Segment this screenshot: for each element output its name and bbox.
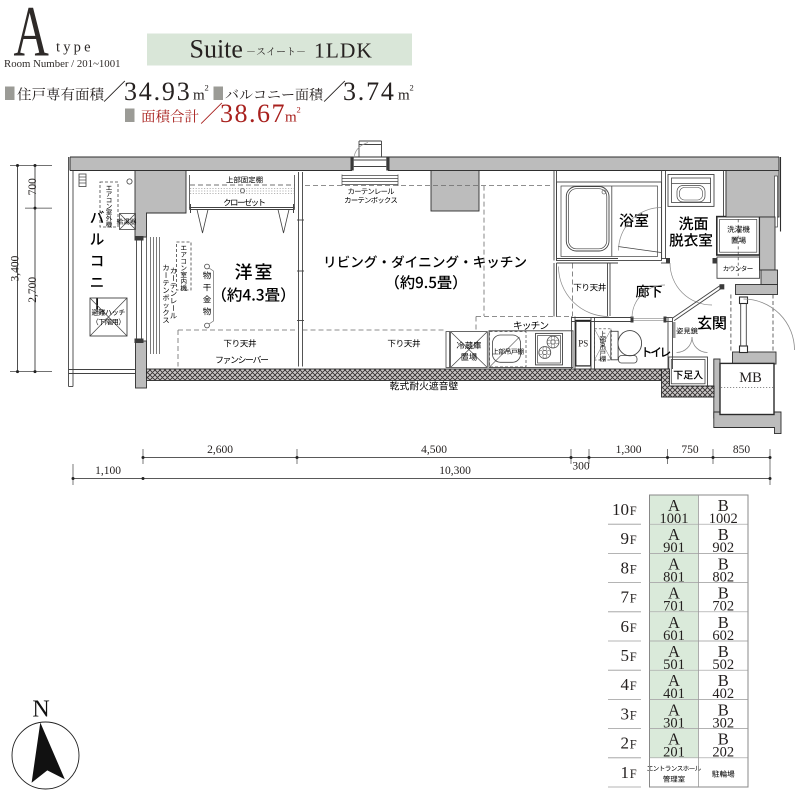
svg-text:Suite: Suite	[190, 35, 243, 64]
svg-text:2: 2	[621, 734, 630, 753]
svg-text:9: 9	[621, 529, 630, 548]
svg-text:PS: PS	[578, 339, 588, 349]
svg-text:8: 8	[621, 558, 630, 577]
svg-text:700: 700	[27, 178, 39, 196]
svg-text:2,600: 2,600	[207, 444, 233, 456]
svg-text:1,100: 1,100	[95, 465, 121, 477]
svg-text:2: 2	[297, 105, 301, 115]
svg-text:3: 3	[621, 704, 630, 723]
svg-text:F: F	[630, 708, 637, 722]
svg-text:5: 5	[621, 646, 630, 665]
svg-text:F: F	[630, 592, 637, 606]
svg-text:F: F	[630, 562, 637, 576]
svg-text:m: m	[193, 88, 205, 104]
svg-text:2: 2	[410, 83, 414, 93]
svg-text:F: F	[630, 738, 637, 752]
svg-text:10: 10	[612, 500, 629, 519]
svg-text:F: F	[630, 533, 637, 547]
svg-text:4,500: 4,500	[421, 444, 447, 456]
svg-text:F: F	[630, 621, 637, 635]
svg-text:2,700: 2,700	[27, 277, 39, 303]
svg-text:38.67: 38.67	[220, 99, 286, 128]
svg-text:6: 6	[621, 617, 630, 636]
svg-text:202: 202	[712, 745, 734, 761]
svg-text:type: type	[56, 40, 94, 56]
svg-text:F: F	[630, 650, 637, 664]
svg-text:7: 7	[621, 588, 630, 607]
svg-text:750: 750	[681, 444, 699, 456]
svg-text:N: N	[32, 697, 49, 723]
svg-text:F: F	[630, 679, 637, 693]
svg-text:1LDK: 1LDK	[314, 39, 373, 63]
svg-text:2: 2	[205, 83, 209, 93]
svg-text:1,300: 1,300	[616, 444, 642, 456]
svg-text:34.93: 34.93	[124, 77, 192, 106]
svg-text:m: m	[398, 88, 410, 104]
svg-text:3.74: 3.74	[343, 77, 396, 106]
svg-text:201: 201	[663, 745, 685, 761]
svg-text:850: 850	[733, 444, 751, 456]
svg-text:F: F	[630, 767, 637, 781]
svg-text:F: F	[630, 504, 637, 518]
svg-text:3,400: 3,400	[10, 255, 22, 281]
svg-text:300: 300	[572, 461, 590, 473]
svg-text:1: 1	[621, 763, 630, 782]
svg-text:4: 4	[621, 675, 630, 694]
svg-text:m: m	[285, 110, 297, 126]
svg-text:Room Number / 201~1001: Room Number / 201~1001	[4, 58, 121, 70]
svg-text:10,300: 10,300	[439, 465, 471, 477]
svg-text:MB: MB	[739, 370, 762, 386]
